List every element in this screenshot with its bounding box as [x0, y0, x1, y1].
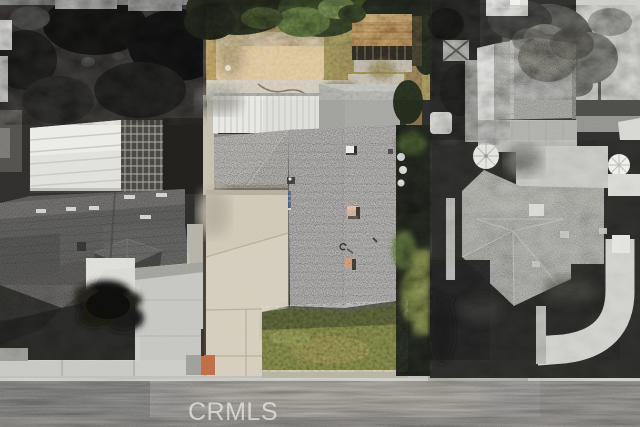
svg-text:CRMLS: CRMLS: [188, 398, 278, 426]
